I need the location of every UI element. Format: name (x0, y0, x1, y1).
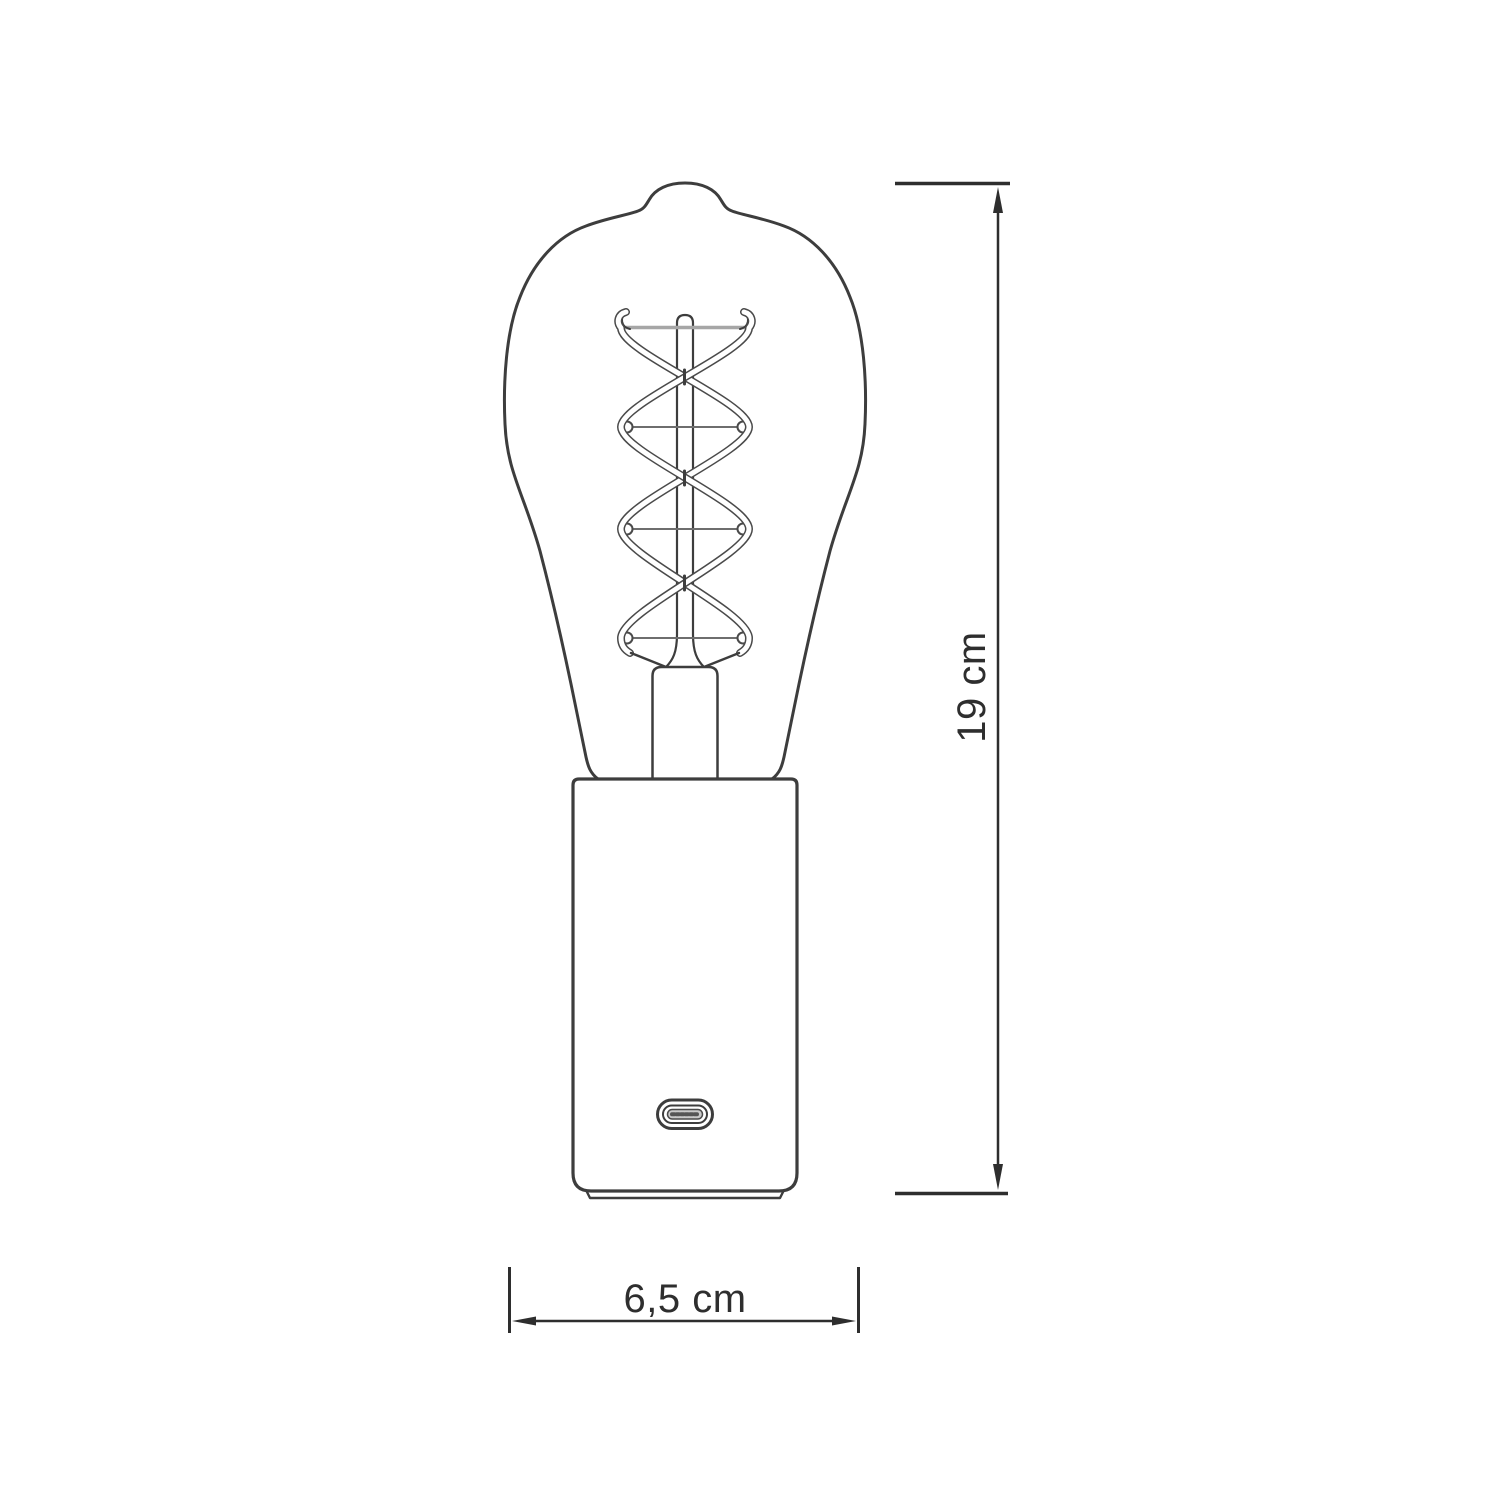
arrow-right-icon (832, 1317, 856, 1326)
usb-c-port-icon (658, 1100, 713, 1129)
arrow-left-icon (512, 1317, 536, 1326)
arrow-down-icon (993, 1164, 1003, 1190)
stem-press-socket-icon (653, 667, 718, 779)
technical-drawing-canvas: 19 cm 6,5 cm (0, 0, 1500, 1500)
height-dimension-label: 19 cm (950, 537, 994, 837)
arrow-up-icon (993, 187, 1003, 213)
base-foot-icon (587, 1192, 783, 1198)
lamp-dimension-diagram (0, 0, 1500, 1500)
lamp-drawing (504, 107, 865, 1198)
width-dimension-label: 6,5 cm (535, 1277, 835, 1321)
